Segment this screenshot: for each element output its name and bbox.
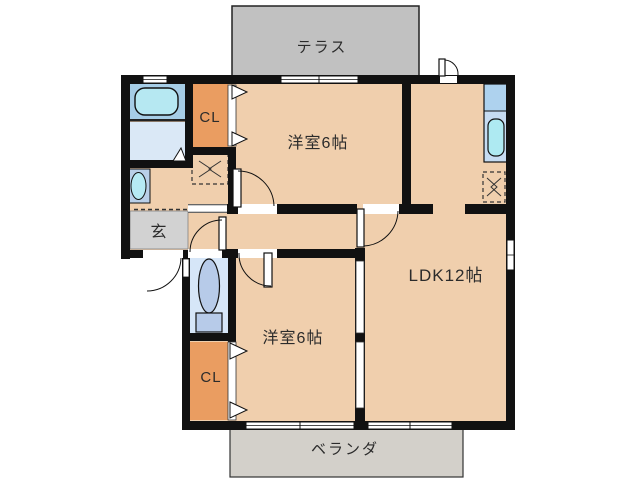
- bathroom-divider-line: [130, 119, 185, 122]
- opening-bedroom-upper-door: [238, 204, 277, 214]
- window-top-small: [143, 76, 167, 83]
- toilet-tank-icon: [196, 313, 222, 332]
- opening-toilet-door: [188, 249, 222, 258]
- floorplan-canvas: テラス CL 洋室6帖 玄 LDK12帖 洋室6帖 CL ベランダ: [0, 0, 640, 480]
- window-ldk-east: [507, 240, 514, 270]
- kitchen-counter-top-icon: [484, 84, 507, 111]
- window-top-sliding: [281, 76, 358, 83]
- toilet-bowl-icon: [199, 259, 220, 313]
- floorplan-svg: テラス CL 洋室6帖 玄 LDK12帖 洋室6帖 CL ベランダ: [0, 0, 640, 480]
- bathtub-icon: [135, 88, 178, 115]
- entrance-door-arc: [147, 258, 181, 291]
- wall-toilet-south: [182, 333, 236, 341]
- window-toilet: [183, 259, 189, 277]
- sliding-door-panel-lower: [356, 342, 364, 408]
- kitchen-sink-icon: [488, 119, 504, 156]
- bedroom-lower-door-leaf: [264, 253, 272, 287]
- entrance-label: 玄: [150, 223, 167, 241]
- terrace-label: テラス: [297, 39, 348, 56]
- bedroom-upper-label: 洋室6帖: [288, 134, 349, 152]
- washbasin-bowl-icon: [131, 173, 146, 200]
- kitchen-back-door-arc: [445, 60, 458, 75]
- wall-kitchen-south: [465, 204, 507, 214]
- ldk-label: LDK12帖: [409, 266, 484, 285]
- opening-ldk-door: [363, 204, 399, 214]
- wall-toilet-east: [228, 250, 236, 342]
- bedroom-lower-label: 洋室6帖: [263, 329, 324, 347]
- opening-hall-corridor: [188, 204, 227, 213]
- closet-lower-label: CL: [200, 369, 221, 386]
- bedroom-upper-door-leaf: [233, 169, 241, 207]
- opening-kitchen-back-door: [440, 76, 457, 83]
- kitchen-back-door-leaf: [439, 59, 445, 76]
- veranda-label: ベランダ: [311, 441, 379, 458]
- closet-upper-label: CL: [199, 109, 220, 126]
- opening-entrance-door: [143, 250, 183, 258]
- toilet-door-leaf: [219, 217, 226, 250]
- wall-bedroom-lower-north: [277, 249, 357, 258]
- ldk-door-leaf: [357, 209, 364, 247]
- window-bedroom-lower-sliding: [246, 422, 354, 429]
- sliding-door-panel-upper: [356, 261, 364, 333]
- window-ldk-sliding: [368, 422, 452, 429]
- wall-bedroom-upper-south: [277, 204, 357, 214]
- wall-bedroom-upper-east: [402, 75, 411, 214]
